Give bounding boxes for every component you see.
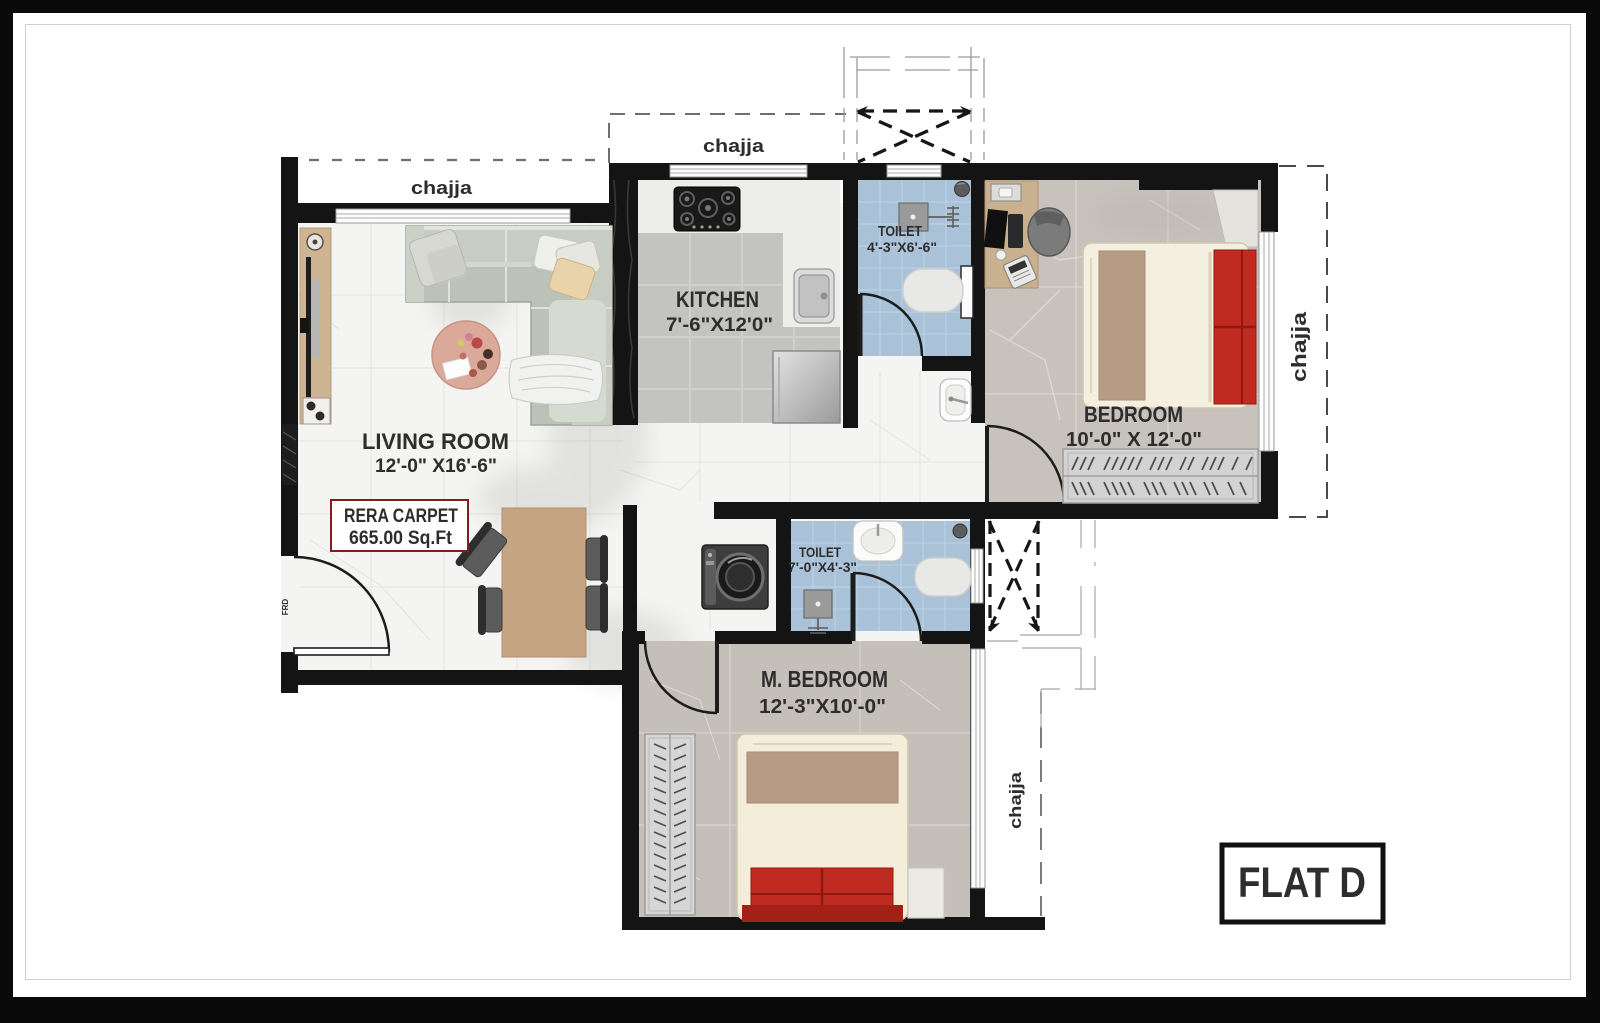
svg-text:LIVING ROOM: LIVING ROOM — [362, 429, 509, 454]
svg-text:12'-3"X10'-0": 12'-3"X10'-0" — [759, 696, 886, 718]
svg-text:BEDROOM: BEDROOM — [1084, 402, 1183, 427]
svg-text:665.00 Sq.Ft: 665.00 Sq.Ft — [349, 528, 453, 549]
svg-text:RERA CARPET: RERA CARPET — [344, 506, 458, 527]
svg-text:chajja: chajja — [1006, 771, 1025, 829]
svg-text:chajja: chajja — [1289, 311, 1311, 382]
svg-text:FRD: FRD — [281, 599, 290, 616]
svg-text:chajja: chajja — [411, 178, 473, 198]
svg-text:KITCHEN: KITCHEN — [676, 287, 759, 312]
svg-text:7'-6"X12'0": 7'-6"X12'0" — [666, 315, 773, 336]
svg-text:chajja: chajja — [703, 136, 765, 156]
svg-text:12'-0" X16'-6": 12'-0" X16'-6" — [375, 455, 497, 477]
svg-text:10'-0" X 12'-0": 10'-0" X 12'-0" — [1066, 429, 1202, 451]
svg-text:M. BEDROOM: M. BEDROOM — [761, 666, 888, 692]
svg-text:TOILET: TOILET — [878, 224, 922, 240]
svg-text:4'-3"X6'-6": 4'-3"X6'-6" — [867, 239, 937, 255]
svg-text:7'-0"X4'-3": 7'-0"X4'-3" — [788, 560, 857, 575]
svg-text:TOILET: TOILET — [799, 544, 841, 560]
svg-text:FLAT D: FLAT D — [1238, 859, 1366, 907]
